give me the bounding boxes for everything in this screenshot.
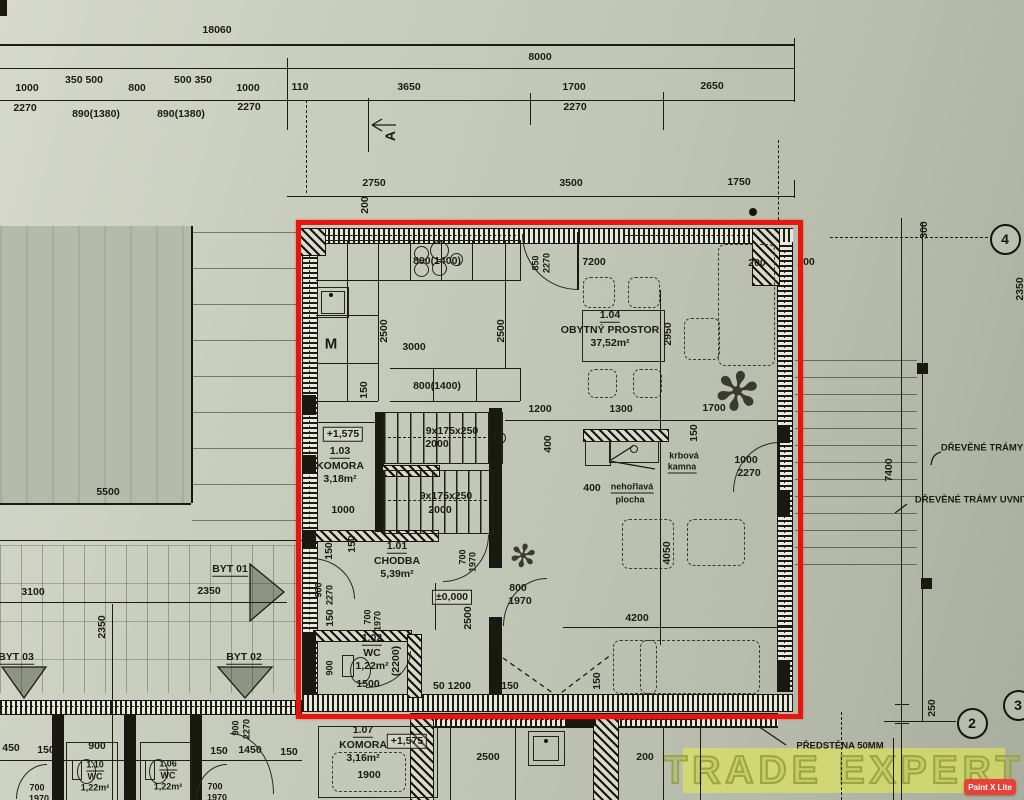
dim-label: 2350: [97, 615, 108, 638]
floor-plan-canvas: TRADE EXPERT Paint X Lite ✻✻180608000100…: [0, 0, 1024, 800]
terrace-pad: [0, 226, 193, 503]
room-id: 1.10: [86, 761, 104, 772]
wall-solid: [52, 714, 64, 800]
dim-label: 1450: [238, 745, 261, 756]
dim-label: 450: [2, 743, 20, 754]
dim-label: 890(1380): [157, 109, 205, 120]
dim-label: 1750: [727, 177, 750, 188]
plan-line: [893, 738, 894, 800]
dim-label: 700: [207, 783, 222, 792]
dim-label: 500 350: [174, 75, 212, 86]
grid-marker: 3: [1003, 690, 1024, 721]
room-area: 1,22m²: [154, 783, 183, 792]
plan-line: [841, 712, 842, 800]
dim-label: 1970: [207, 794, 227, 800]
note-label: BYT 03: [0, 652, 34, 665]
deck-lines: [192, 232, 300, 532]
dim-label: 2350: [1015, 277, 1024, 300]
note-label: DŘEVĚNÉ TRÁMY UVNITŘ: [915, 495, 1024, 505]
dim-label: 1970: [29, 795, 49, 800]
room-name: WC: [161, 772, 176, 781]
paint-x-lite-badge: Paint X Lite: [964, 779, 1016, 795]
plan-line: [901, 218, 902, 800]
dim-label: 3100: [21, 587, 44, 598]
plan-line: [287, 58, 288, 130]
dim-label: 2270: [13, 103, 36, 114]
note-label: DŘEVĚNÉ TRÁMY: [941, 443, 1023, 453]
plan-line: [895, 723, 909, 724]
deck-lines: [795, 360, 917, 572]
plan-line: [794, 180, 795, 198]
door-swing-arc: [230, 733, 274, 794]
plan-line: [515, 727, 516, 800]
dim-label: 890(1380): [72, 109, 120, 120]
plan-line: [450, 727, 451, 800]
dim-label: 1700: [562, 82, 585, 93]
dim-label: 900: [232, 720, 241, 735]
dim-label: 8000: [528, 52, 551, 63]
dim-label: 800: [128, 83, 146, 94]
plan-line: [0, 706, 300, 707]
grid-marker: 4: [990, 224, 1021, 255]
dim-label: 2270: [563, 102, 586, 113]
dim-label: 150: [210, 746, 228, 757]
dim-label: 150: [280, 747, 298, 758]
plan-line: [895, 704, 909, 705]
room-name: WC: [88, 773, 103, 782]
dim-label: 2270: [243, 719, 252, 739]
plan-line: [884, 721, 956, 722]
dim-label: 7400: [884, 458, 895, 481]
leader-line: [372, 119, 396, 131]
trade-expert-watermark: TRADE EXPERT: [683, 748, 1005, 793]
room-name: KOMORA: [339, 739, 387, 750]
dim-label: 300: [919, 221, 930, 239]
note-label: A: [383, 131, 397, 141]
dot-glyph: [544, 739, 548, 743]
dim-label: 18060: [202, 25, 231, 36]
dim-label: 2650: [700, 81, 723, 92]
dim-label: 3650: [397, 82, 420, 93]
dim-label: 1900: [357, 770, 380, 781]
plan-line: [0, 540, 302, 541]
dim-label: 900: [88, 741, 106, 752]
plan-line: [700, 726, 701, 800]
plan-line: [0, 100, 795, 101]
dim-label: 2500: [476, 752, 499, 763]
room-id: 1.06: [159, 760, 177, 771]
dim-label: 700: [29, 784, 44, 793]
plan-line: [368, 98, 369, 152]
wall-solid: [124, 714, 136, 800]
note-label: BYT 01: [212, 564, 248, 577]
room-id: 1.07: [353, 725, 373, 738]
dim-label: 5500: [96, 487, 119, 498]
room-area: 3,16m²: [346, 753, 379, 764]
dim-label: 3500: [559, 178, 582, 189]
note-label: BYT 02: [226, 652, 262, 665]
wall-solid: [917, 363, 928, 374]
leader-line: [931, 452, 941, 465]
wall-solid: [0, 0, 7, 16]
dim-label: 110: [292, 82, 309, 93]
plan-line: [663, 92, 664, 130]
dim-label: +1,575: [387, 734, 427, 749]
dim-label: 2750: [362, 178, 385, 189]
dim-label: 150: [37, 745, 55, 756]
deck-lines: [0, 545, 300, 693]
dim-label: 200: [360, 196, 371, 214]
wall-hatch: [593, 715, 619, 800]
wall-band: [0, 700, 302, 715]
dim-label: 1000: [236, 83, 259, 94]
dot-glyph: [749, 208, 757, 216]
plan-line: [435, 719, 695, 720]
dim-label: 1000: [15, 83, 38, 94]
highlight-red-box: [296, 220, 803, 719]
plan-line: [778, 140, 779, 220]
dim-label: 350 500: [65, 75, 103, 86]
plan-line: [530, 93, 531, 125]
plan-line: [922, 222, 923, 722]
wall-solid: [921, 578, 932, 589]
plan-line: [0, 503, 191, 505]
plan-line: [663, 727, 664, 800]
plan-line: [830, 237, 988, 238]
plan-line: [0, 602, 287, 603]
dim-label: 2350: [197, 586, 220, 597]
note-label: PŘEDSTĚNA 50MM: [796, 741, 883, 751]
plan-line: [0, 68, 795, 69]
dim-label: 2270: [237, 102, 260, 113]
plan-line: [0, 44, 795, 46]
room-area: 1,22m²: [81, 784, 110, 793]
plan-line: [794, 38, 795, 102]
grid-marker: 2: [957, 708, 988, 739]
dim-label: 200: [636, 752, 654, 763]
dim-label: 250: [927, 699, 938, 717]
plan-line: [306, 100, 307, 193]
